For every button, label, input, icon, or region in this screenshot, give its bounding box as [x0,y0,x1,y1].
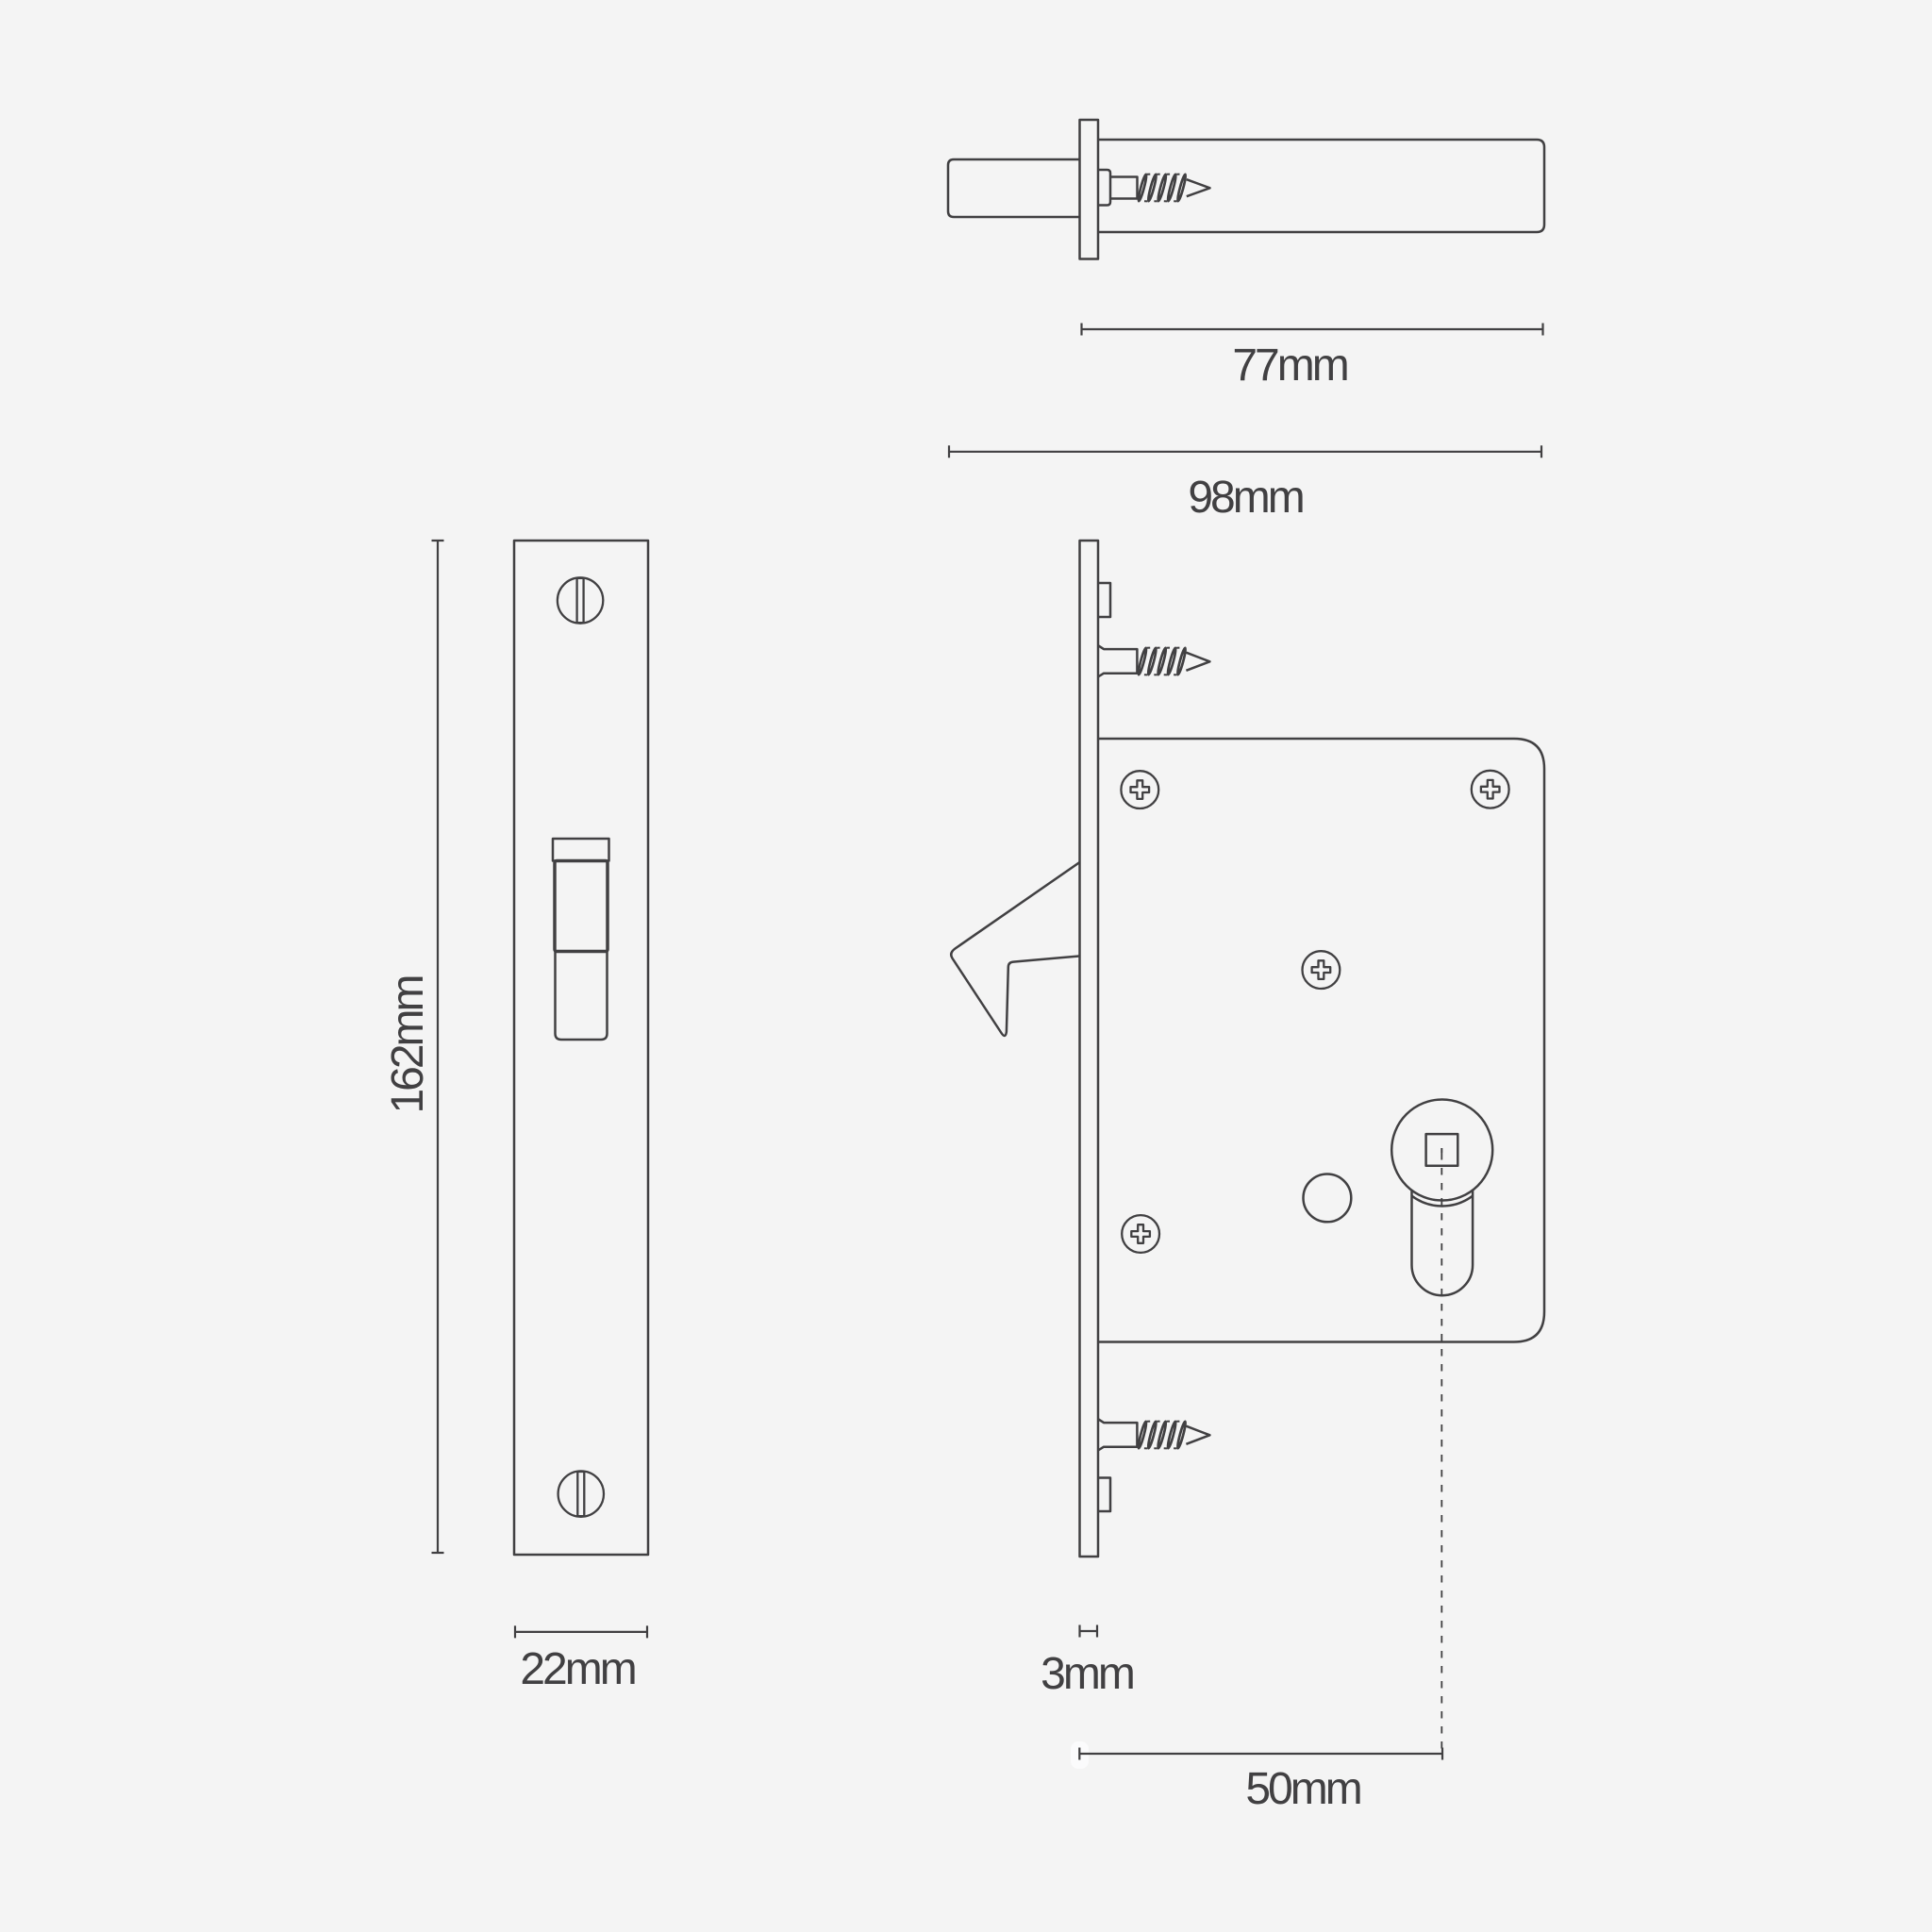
svg-text:50mm: 50mm [1245,1764,1359,1814]
svg-text:162mm: 162mm [383,976,433,1113]
svg-text:3mm: 3mm [1041,1649,1133,1699]
svg-text:98mm: 98mm [1188,473,1302,523]
svg-text:22mm: 22mm [520,1644,634,1694]
svg-text:77mm: 77mm [1232,341,1346,391]
